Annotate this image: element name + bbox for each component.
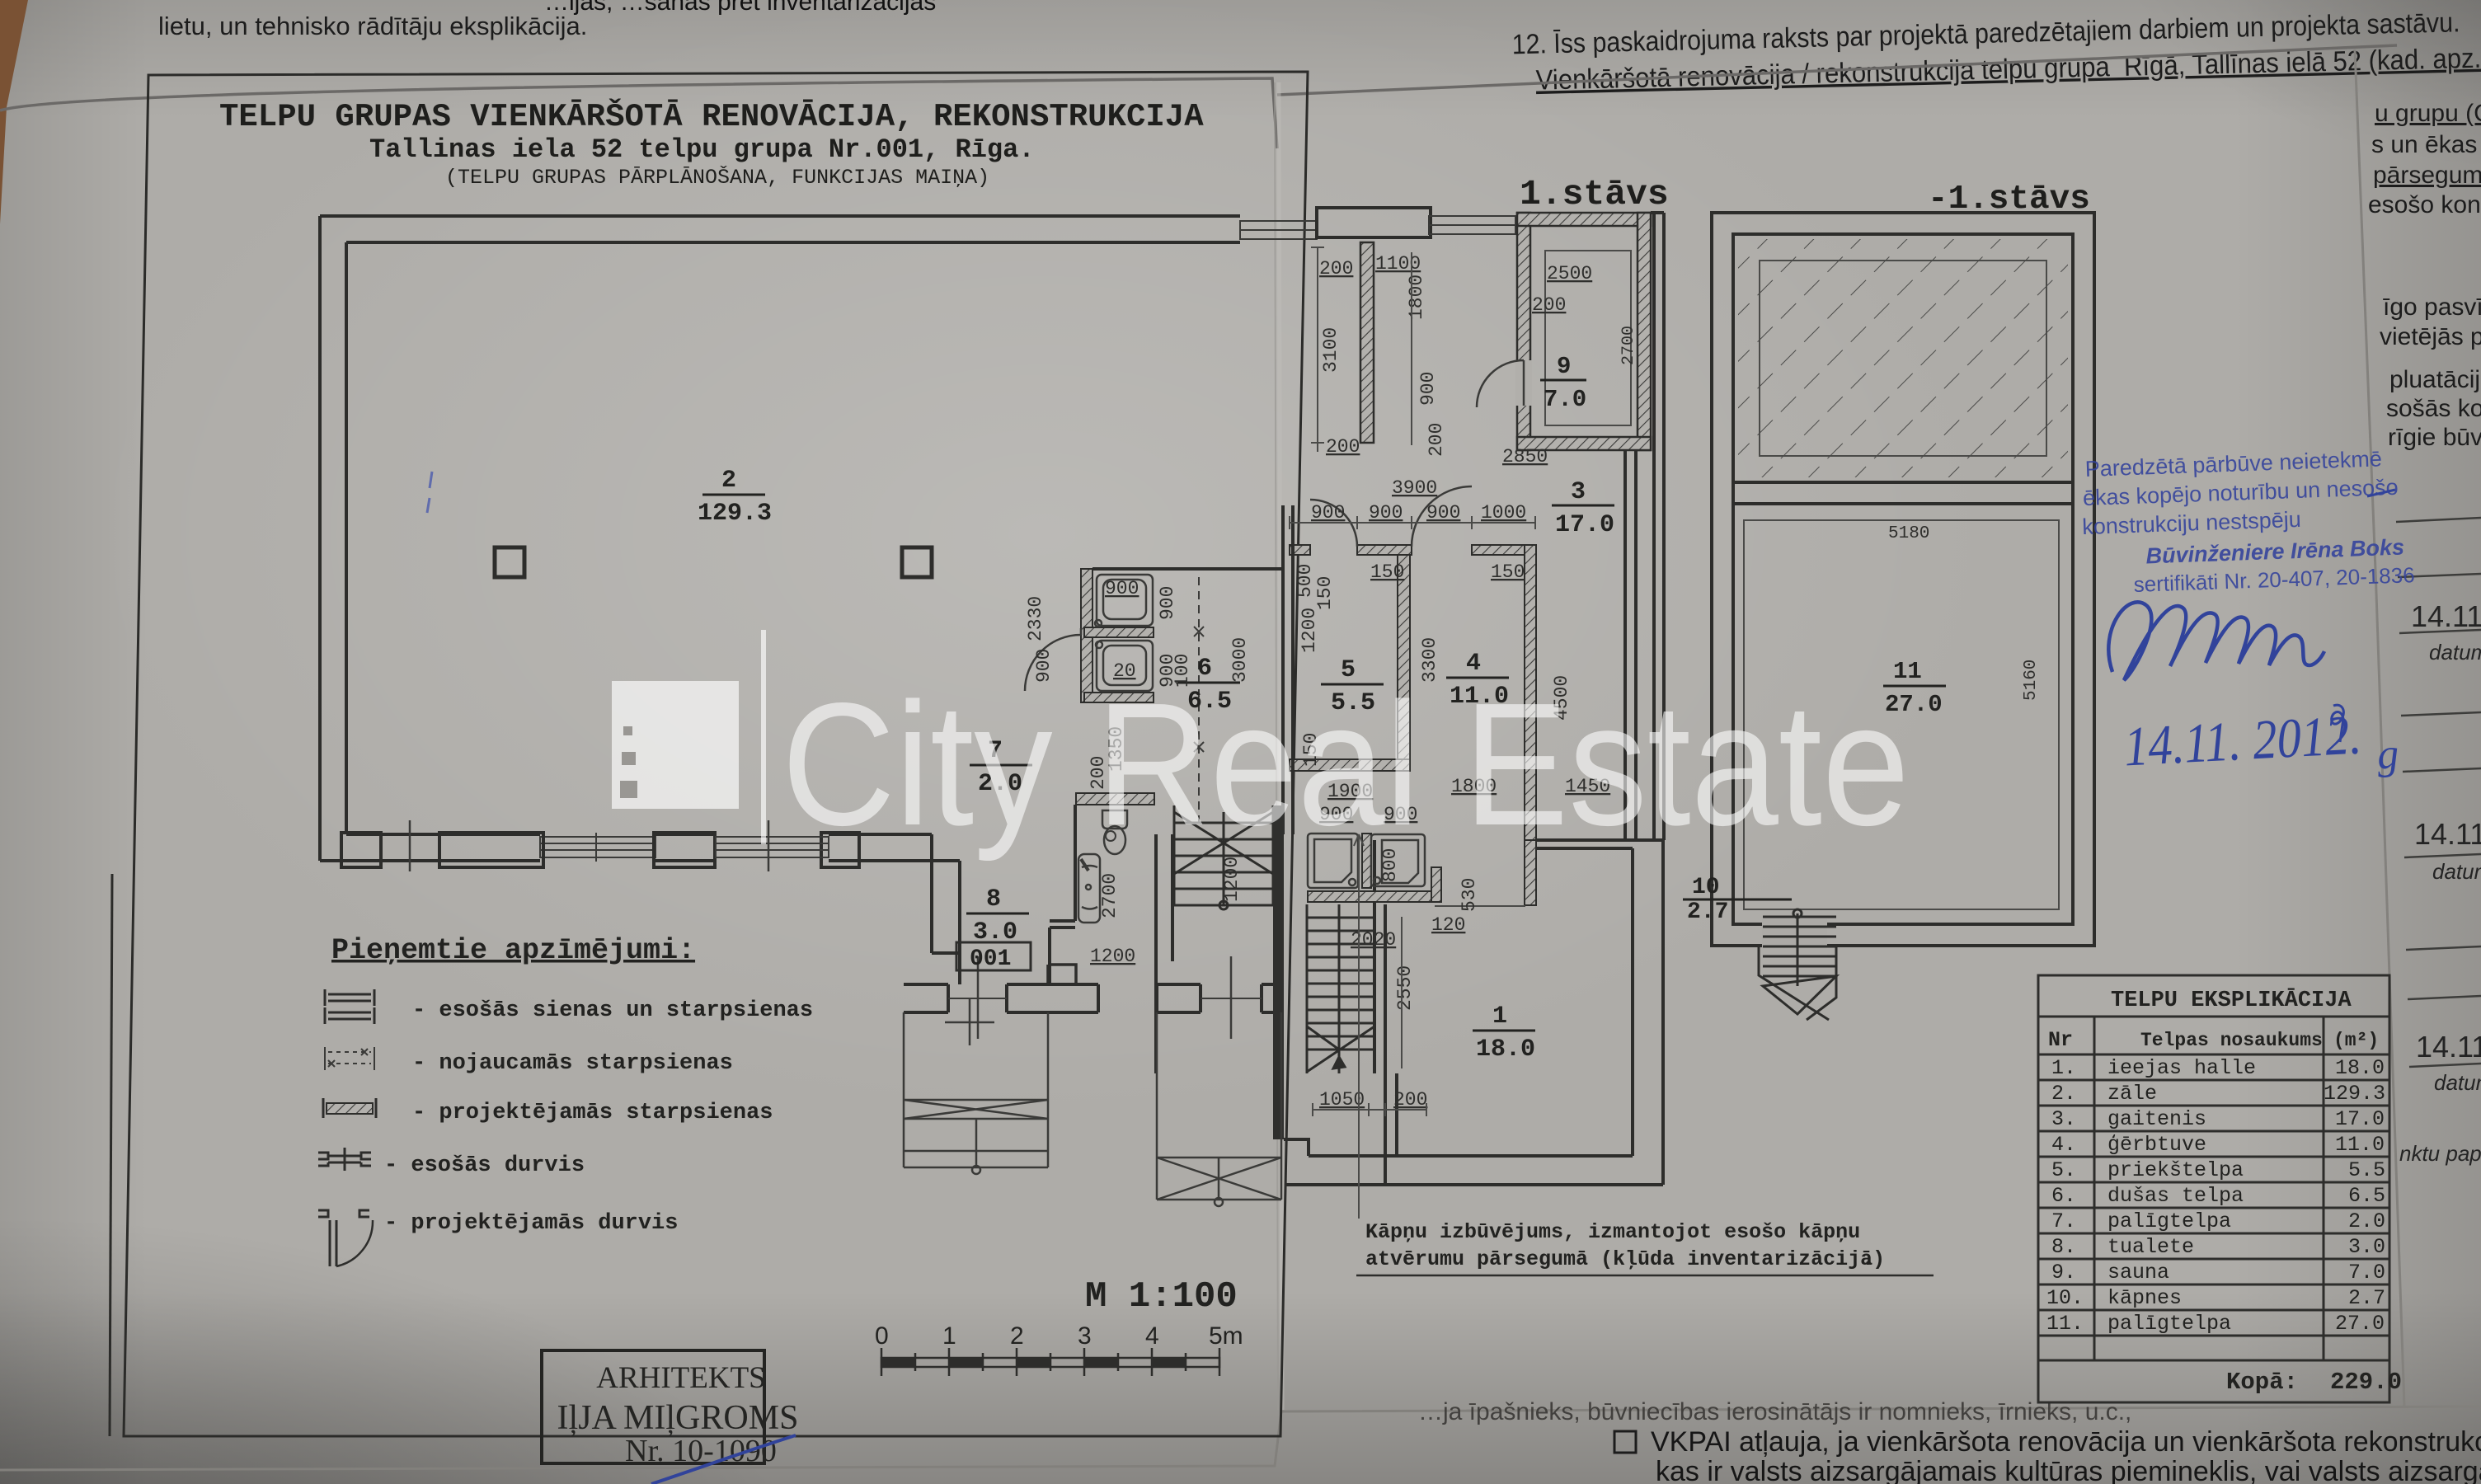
svg-text:900: 900 <box>1105 578 1139 599</box>
svg-text:1200: 1200 <box>1299 608 1320 653</box>
svg-text:200: 200 <box>1319 258 1353 279</box>
svg-text:900: 900 <box>1417 372 1439 406</box>
svg-text:4.: 4. <box>2051 1133 2076 1157</box>
svg-text:kāpnes: kāpnes <box>2107 1286 2182 1310</box>
svg-text:5160: 5160 <box>2022 660 2041 701</box>
svg-text:- nojaucamās starpsienas: - nojaucamās starpsienas <box>412 1051 733 1076</box>
svg-text:1050: 1050 <box>1319 1089 1365 1111</box>
svg-text:3.0: 3.0 <box>2348 1235 2385 1259</box>
svg-text:5.5: 5.5 <box>2348 1158 2385 1182</box>
svg-text:TELPU EKSPLIKĀCIJA: TELPU EKSPLIKĀCIJA <box>2111 987 2352 1013</box>
svg-text:sertifikāti Nr. 20-407, 20-183: sertifikāti Nr. 20-407, 20-1836 <box>2133 562 2415 597</box>
svg-text:lietu, un tehnisko rādītāju ek: lietu, un tehnisko rādītāju eksplikācija… <box>158 12 587 40</box>
svg-text:datum: datum <box>2432 859 2481 884</box>
svg-text:2.: 2. <box>2051 1082 2076 1106</box>
svg-text:8.: 8. <box>2051 1235 2076 1259</box>
svg-text:atvērumu pārsegumā (kļūda inve: atvērumu pārsegumā (kļūda inventarizācij… <box>1365 1247 1885 1271</box>
svg-text:18.0: 18.0 <box>2335 1056 2385 1080</box>
svg-text:11.: 11. <box>2046 1312 2084 1336</box>
svg-text:3: 3 <box>1078 1322 1092 1350</box>
svg-text:2700: 2700 <box>1619 326 1638 365</box>
svg-text:.: . <box>1862 1247 1874 1271</box>
svg-text:1200: 1200 <box>1221 857 1243 902</box>
svg-text:zāle: zāle <box>2107 1082 2157 1106</box>
svg-text:gaitenis: gaitenis <box>2107 1107 2206 1131</box>
svg-text:14.11. 2012.: 14.11. 2012. <box>2122 702 2363 777</box>
svg-text:0: 0 <box>875 1322 889 1350</box>
svg-text:palīgtelpa: palīgtelpa <box>2107 1312 2231 1336</box>
svg-text:sošās kons: sošās kons <box>2386 395 2481 422</box>
svg-text:200: 200 <box>1426 423 1447 457</box>
svg-text:150: 150 <box>1491 561 1525 583</box>
svg-text:1: 1 <box>942 1322 956 1350</box>
svg-text:900: 900 <box>1426 502 1460 524</box>
svg-text:sauna: sauna <box>2107 1261 2169 1284</box>
svg-text:3.: 3. <box>2051 1107 2076 1131</box>
svg-text:150: 150 <box>1370 561 1404 583</box>
svg-text:IļJA MIļGROMS: IļJA MIļGROMS <box>557 1399 799 1437</box>
svg-text:1800: 1800 <box>1406 275 1427 320</box>
svg-text:pārsegumā: pārsegumā <box>2373 162 2481 189</box>
svg-text:(TELPU GRUPAS PĀRPLĀNOŠANA, FU: (TELPU GRUPAS PĀRPLĀNOŠANA, FUNKCIJAS MA… <box>445 165 989 190</box>
svg-text:…ijās, …šanās pret inventarizā: …ijās, …šanās pret inventarizācijas <box>544 0 936 16</box>
svg-text:2.7: 2.7 <box>2348 1286 2385 1310</box>
svg-text:Nr. 10-1090: Nr. 10-1090 <box>625 1434 777 1468</box>
svg-text:2: 2 <box>1010 1322 1024 1350</box>
svg-text:129.3: 129.3 <box>698 500 772 528</box>
svg-text:10: 10 <box>1692 875 1720 900</box>
svg-text:pluatāciju: pluatāciju <box>2389 366 2481 393</box>
svg-text:5180: 5180 <box>1888 524 1929 543</box>
svg-text:14.11.2: 14.11.2 <box>2416 1030 2481 1064</box>
svg-text:Kāpņu izbūvējums, izmantojot e: Kāpņu izbūvējums, izmantojot esošo kāpņu <box>1365 1220 1860 1244</box>
svg-text:200: 200 <box>1326 436 1360 458</box>
svg-text:3100: 3100 <box>1320 327 1342 373</box>
svg-text:- projektējamās starpsienas: - projektējamās starpsienas <box>412 1101 773 1125</box>
svg-text:Telpas nosaukums: Telpas nosaukums <box>2140 1030 2323 1051</box>
svg-text:īgo pasvītr: īgo pasvītr <box>2383 294 2481 321</box>
svg-text:TELPU GRUPAS VIENKĀRŠOTĀ RENOV: TELPU GRUPAS VIENKĀRŠOTĀ RENOVĀCIJA, REK… <box>219 98 1204 135</box>
svg-text:4: 4 <box>1145 1322 1159 1350</box>
svg-text:6.5: 6.5 <box>2348 1184 2385 1208</box>
svg-text:2850: 2850 <box>1502 446 1548 467</box>
svg-text:2500: 2500 <box>1547 263 1592 284</box>
svg-text:palīgtelpa: palīgtelpa <box>2107 1209 2231 1233</box>
svg-text:dušas telpa: dušas telpa <box>2107 1184 2244 1208</box>
svg-text:001: 001 <box>970 946 1011 972</box>
svg-text:14.11.20: 14.11.20 <box>2411 599 2481 633</box>
svg-text:Pieņemtie apzīmējumi:: Pieņemtie apzīmējumi: <box>331 934 695 967</box>
svg-text:120: 120 <box>1431 914 1465 936</box>
svg-text:ARHITEKTS: ARHITEKTS <box>596 1361 766 1395</box>
svg-text:2700: 2700 <box>1099 873 1121 918</box>
svg-text:1000: 1000 <box>1481 502 1526 524</box>
svg-text:…ja īpašnieks, būvniecības ier: …ja īpašnieks, būvniecības ierosinātājs … <box>1418 1398 2131 1425</box>
svg-text:City Real Estate: City Real Estate <box>782 666 1910 862</box>
svg-text:17.0: 17.0 <box>1555 511 1614 539</box>
svg-text:500: 500 <box>1295 564 1316 598</box>
svg-text:2020: 2020 <box>1351 929 1396 951</box>
svg-text:900: 900 <box>1369 502 1403 524</box>
svg-text:200: 200 <box>1532 294 1566 316</box>
svg-text:7.0: 7.0 <box>2348 1261 2385 1284</box>
svg-text:2550: 2550 <box>1394 965 1416 1011</box>
svg-text:datum: datum <box>2434 1070 2481 1095</box>
svg-text:9.: 9. <box>2051 1261 2076 1284</box>
svg-text:- projektējamās durvis: - projektējamās durvis <box>384 1211 678 1236</box>
svg-text:229.0: 229.0 <box>2330 1369 2402 1396</box>
svg-text:Nr: Nr <box>2048 1028 2073 1052</box>
svg-text:- esošās durvis: - esošās durvis <box>384 1153 585 1178</box>
svg-text:7.0: 7.0 <box>1544 386 1586 413</box>
svg-text:tualete: tualete <box>2107 1235 2194 1259</box>
svg-text:11.0: 11.0 <box>2335 1133 2385 1157</box>
svg-text:530: 530 <box>1459 878 1480 912</box>
svg-text:(m²): (m²) <box>2333 1030 2379 1051</box>
svg-text:VKPAI atļauja, ja vienkāršota: VKPAI atļauja, ja vienkāršota renovācija… <box>1651 1426 2481 1458</box>
svg-text:Tallinas iela 52 telpu grupa N: Tallinas iela 52 telpu grupa Nr.001, Rīg… <box>369 134 1035 165</box>
svg-text:g: g <box>2376 730 2400 778</box>
svg-text:150: 150 <box>1314 576 1336 610</box>
svg-text:- esošās sienas un starpsienas: - esošās sienas un starpsienas <box>412 998 813 1023</box>
svg-text:17.0: 17.0 <box>2335 1107 2385 1131</box>
svg-text:5m: 5m <box>1209 1322 1243 1350</box>
svg-text:129.3: 129.3 <box>2324 1082 2385 1106</box>
svg-text:M 1:100: M 1:100 <box>1085 1276 1238 1317</box>
svg-text:200: 200 <box>1393 1089 1427 1111</box>
svg-text:nktu papil: nktu papil <box>2399 1141 2481 1166</box>
svg-text:s un ēkas r: s un ēkas r <box>2371 131 2481 158</box>
svg-text:ģērbtuve: ģērbtuve <box>2107 1133 2206 1157</box>
svg-text:3900: 3900 <box>1392 477 1437 499</box>
svg-text:datums: datums <box>2429 640 2481 665</box>
svg-text:3: 3 <box>1571 478 1586 506</box>
svg-text:vietējās paš: vietējās paš <box>2380 323 2481 350</box>
svg-text:1.stāvs: 1.stāvs <box>1520 174 1669 214</box>
svg-text:2.0: 2.0 <box>2348 1209 2385 1233</box>
svg-text:14.11.2: 14.11.2 <box>2414 817 2481 851</box>
svg-text:900: 900 <box>1157 586 1178 620</box>
svg-text:Kopā:: Kopā: <box>2226 1369 2298 1396</box>
svg-text:7.: 7. <box>2051 1209 2076 1233</box>
svg-text:rīgie būvn: rīgie būvn <box>2388 424 2481 451</box>
svg-text:27.0: 27.0 <box>2335 1312 2385 1336</box>
svg-text:u grupu (CC: u grupu (CC <box>2375 100 2481 127</box>
svg-text:9: 9 <box>1557 353 1571 380</box>
svg-text:18.0: 18.0 <box>1476 1036 1535 1064</box>
svg-text:ieejas halle: ieejas halle <box>2107 1056 2256 1080</box>
svg-text:konstrukciju nestspēju: konstrukciju nestspēju <box>2082 507 2302 539</box>
svg-text:10.: 10. <box>2046 1286 2084 1310</box>
svg-text:2.7: 2.7 <box>1687 899 1728 925</box>
svg-text:1200: 1200 <box>1090 946 1135 967</box>
svg-text:2: 2 <box>721 467 736 495</box>
svg-text:8: 8 <box>986 885 1001 913</box>
svg-text:2330: 2330 <box>1025 596 1046 641</box>
svg-text:5.: 5. <box>2051 1158 2076 1182</box>
svg-text:900: 900 <box>1311 502 1345 524</box>
svg-text:esošo kons: esošo kons <box>2368 191 2481 218</box>
svg-text:1.: 1. <box>2051 1056 2076 1080</box>
svg-text:6.: 6. <box>2051 1184 2076 1208</box>
svg-text:priekštelpa: priekštelpa <box>2107 1158 2244 1182</box>
svg-text:1: 1 <box>1492 1003 1507 1031</box>
svg-text:kas ir valsts aizsargājamais k: kas ir valsts aizsargājamais kultūras pi… <box>1656 1456 2481 1484</box>
svg-text:ēkas kopējo noturību un nesošo: ēkas kopējo noturību un nesošo <box>2083 475 2399 510</box>
svg-text:1100: 1100 <box>1375 253 1421 275</box>
